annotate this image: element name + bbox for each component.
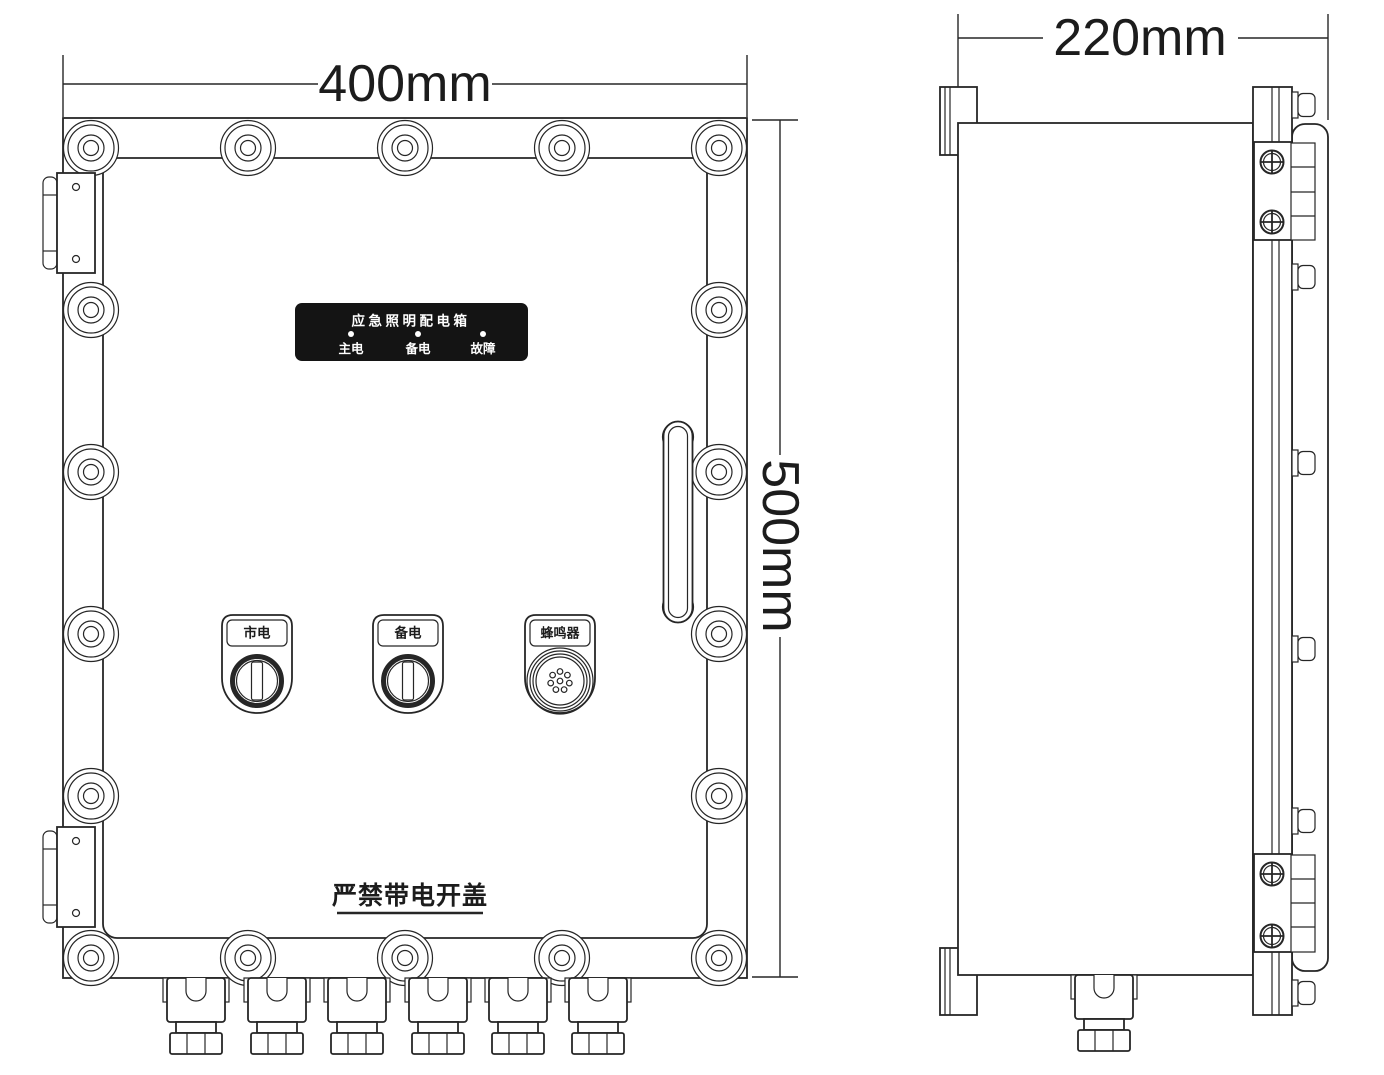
- dimension-label-side-depth: 220mm: [1053, 9, 1226, 67]
- dimension-front-height: 500mm: [751, 120, 809, 977]
- cover-face: [103, 158, 707, 938]
- dimension-label-front-height: 500mm: [751, 459, 809, 632]
- key-switch-mains-label: 市电: [244, 625, 271, 641]
- warning-text: 严禁带电开盖: [332, 881, 488, 910]
- flange-bolt: [692, 931, 747, 986]
- indicator-led-fault: [480, 331, 486, 337]
- flange-bolt: [692, 445, 747, 500]
- cover-screw: [1261, 863, 1284, 886]
- indicator-led-backup: [415, 331, 421, 337]
- door-handle: [663, 422, 694, 623]
- cable-gland: [405, 978, 471, 1054]
- flange-bolt: [692, 607, 747, 662]
- dimension-label-front-width: 400mm: [318, 55, 491, 113]
- cable-gland: [485, 978, 551, 1054]
- cable-gland-side: [1071, 975, 1137, 1051]
- flange-bolt: [64, 769, 119, 824]
- technical-drawing-page: 400mm 500mm: [0, 0, 1384, 1075]
- indicator-label-backup-power: 备电: [404, 341, 431, 356]
- nameplate: 应急照明配电箱 主电 备电 故障: [295, 303, 528, 361]
- warning: 严禁带电开盖: [332, 881, 488, 913]
- cable-gland: [324, 978, 390, 1054]
- cover-screw: [1261, 151, 1284, 174]
- side-body: [958, 123, 1253, 975]
- key-switch-backup: 备电: [373, 615, 443, 713]
- hinge-top: [43, 173, 95, 273]
- indicator-label-fault: 故障: [470, 341, 496, 356]
- flange-bolt: [221, 121, 276, 176]
- flange-bolt: [64, 607, 119, 662]
- side-bolt: [1292, 92, 1315, 118]
- flange-bolt: [692, 283, 747, 338]
- flange-bolt: [64, 121, 119, 176]
- front-view: 400mm 500mm: [43, 55, 809, 1054]
- flange-bolt: [692, 121, 747, 176]
- cover-screw: [1261, 211, 1284, 234]
- side-cover-lid: [1292, 124, 1328, 971]
- flange-bolt: [64, 445, 119, 500]
- key-switch-backup-label: 备电: [394, 625, 422, 641]
- key-switch-mains: 市电: [222, 615, 292, 713]
- side-bolt: [1292, 636, 1315, 662]
- side-bolt: [1292, 808, 1315, 834]
- side-hinge-bottom: [1254, 854, 1315, 952]
- side-view: 220mm: [940, 9, 1328, 1051]
- cable-gland: [565, 978, 631, 1054]
- indicator-led-main: [348, 331, 354, 337]
- cover-screw: [1261, 925, 1284, 948]
- buzzer-label: 蜂鸣器: [540, 626, 580, 641]
- flange-bolt: [378, 121, 433, 176]
- flange-bolt: [692, 769, 747, 824]
- side-bolt: [1292, 450, 1315, 476]
- cable-glands: [163, 978, 631, 1054]
- cable-gland: [163, 978, 229, 1054]
- side-bolt: [1292, 264, 1315, 290]
- side-bolt: [1292, 980, 1315, 1006]
- indicator-label-main-power: 主电: [338, 341, 364, 356]
- technical-drawing: 400mm 500mm: [0, 0, 1384, 1075]
- dimension-front-width: 400mm: [63, 55, 747, 117]
- flange-bolt: [64, 283, 119, 338]
- buzzer: 蜂鸣器: [525, 615, 595, 714]
- side-hinge-top: [1254, 142, 1315, 240]
- nameplate-title: 应急照明配电箱: [352, 313, 471, 329]
- flange-bolt: [64, 931, 119, 986]
- hinge-bottom: [43, 827, 95, 927]
- cable-gland: [244, 978, 310, 1054]
- flange-bolt: [535, 121, 590, 176]
